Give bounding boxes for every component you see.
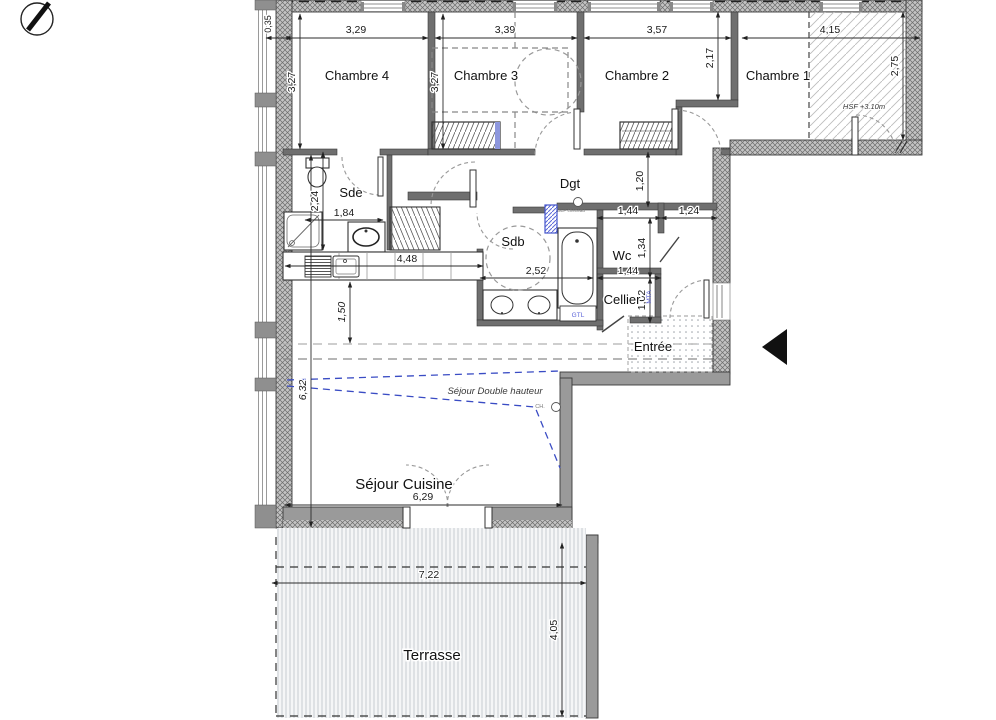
interior-walls (283, 12, 738, 330)
north-arrow-icon (21, 3, 53, 35)
gtl-box: GTL (560, 306, 596, 321)
dim-chambre2-width: 3,57 (647, 24, 668, 36)
closet-sde (390, 207, 440, 250)
room-label-chambre2: Chambre 2 (605, 68, 669, 83)
window-icon (361, 1, 405, 12)
window-icon (513, 1, 557, 12)
dim-chambre1-left-depth: 2,17 (704, 48, 716, 69)
wc-door (660, 237, 679, 262)
cellier-door (602, 316, 624, 332)
mta-label: MTA (646, 290, 653, 304)
room-label-sde: Sde (339, 185, 362, 200)
wardrobe-chambre2 (620, 122, 677, 149)
kitchen-sink-icon (333, 256, 359, 277)
gtl-label: GTL (572, 312, 585, 319)
washbasin-icon (348, 222, 385, 252)
room-label-cellier: Cellier (604, 292, 642, 307)
window-icon (588, 1, 660, 12)
wardrobe-chambre3 (432, 122, 500, 149)
ch-marker-icon: CH. (535, 403, 560, 412)
dim-chambre3-depth: 3,27 (429, 72, 441, 93)
appliance-icon (305, 256, 331, 277)
shower-icon (284, 212, 322, 250)
double-vanity-icon (483, 290, 557, 320)
room-label-chambre4: Chambre 4 (325, 68, 389, 83)
doors (342, 109, 896, 528)
dim-terrasse-depth: 4,05 (548, 620, 560, 641)
dim-chambre3-width: 3,39 (495, 24, 516, 36)
room-label-sdb: Sdb (501, 234, 524, 249)
dim-sdb-width: 2,52 (526, 265, 547, 277)
room-label-dgt: Dgt (560, 176, 581, 191)
dep-label: DEP chéneau (557, 208, 585, 213)
dim-counter-offset: 1,50 (336, 302, 348, 323)
hsf-label: HSF +3.10m (843, 102, 885, 111)
dim-wardrobe-gap: 1,20 (634, 171, 646, 192)
dim-terrasse-width: 7,22 (419, 569, 440, 581)
dim-sejour-depth: 6,32 (297, 380, 309, 401)
dim-wc-depth: 1,34 (636, 238, 648, 259)
floor-plan-drawing: GTL DEP chéneau CH. (0, 0, 996, 720)
dim-sde-depth: 2,24 (309, 191, 321, 212)
window-icon (670, 1, 713, 12)
floor-plan-page: GTL DEP chéneau CH. (0, 0, 996, 720)
ch-label: CH. (535, 404, 545, 410)
entrance-arrow-icon (762, 329, 787, 365)
dim-kitchen-width: 4,48 (397, 253, 418, 265)
room-label-chambre3: Chambre 3 (454, 68, 518, 83)
dim-hall-width: 1,24 (679, 205, 700, 217)
double-height-label: Séjour Double hauteur (447, 386, 543, 397)
terrasse-floor-hatch (276, 528, 586, 718)
dim-wc-width: 1,44 (618, 205, 639, 217)
dim-chambre4-width: 3,29 (346, 24, 367, 36)
technical-shaft (545, 205, 557, 233)
bathtub-icon (558, 228, 597, 308)
room-label-chambre1: Chambre 1 (746, 68, 810, 83)
dim-shower-width: 1,84 (334, 207, 355, 219)
dim-cellier-width: 1,44 (618, 265, 639, 277)
room-label-terrasse: Terrasse (403, 647, 461, 664)
room-label-entree: Entrée (634, 339, 672, 354)
room-label-wc: Wc (613, 248, 632, 263)
dim-chambre4-depth: 3,27 (286, 72, 298, 93)
dim-loggia-depth: 2,75 (889, 56, 901, 77)
dim-chambre1-width: 4,15 (820, 24, 841, 36)
window-icon (820, 1, 862, 12)
turning-circle (515, 49, 581, 115)
dim-wall-thickness: 0,35 (263, 15, 273, 33)
entrance-door-gap (713, 283, 730, 320)
room-label-sejour: Séjour Cuisine (355, 476, 453, 493)
toilet-icon (306, 158, 329, 187)
